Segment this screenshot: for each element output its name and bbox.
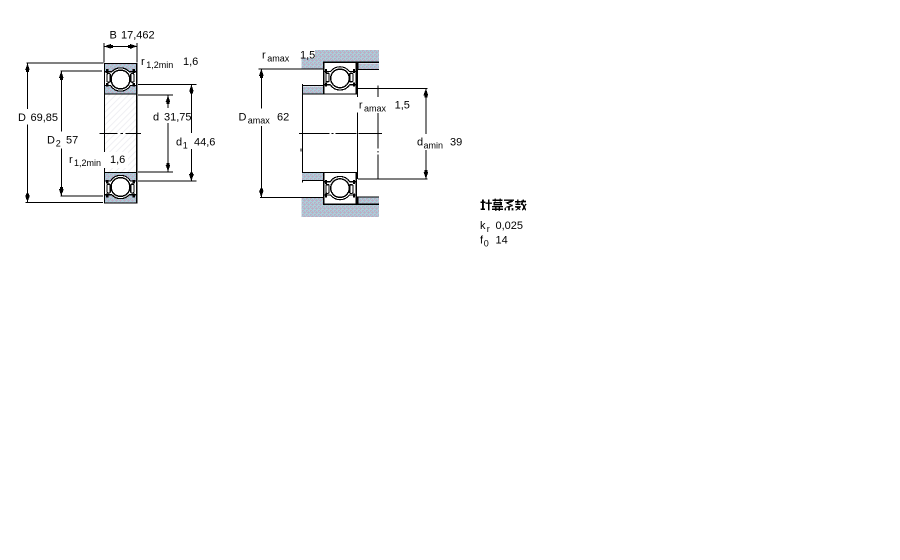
svg-text:amax: amax (364, 104, 387, 114)
svg-text:D: D (239, 112, 247, 124)
svg-text:0: 0 (484, 239, 489, 249)
svg-text:69,85: 69,85 (31, 112, 59, 124)
svg-text:B: B (110, 29, 117, 41)
svg-text:57: 57 (66, 135, 78, 147)
svg-text:39: 39 (450, 136, 462, 148)
svg-text:r: r (141, 56, 145, 68)
svg-text:d: d (153, 112, 159, 124)
svg-text:31,75: 31,75 (164, 112, 192, 124)
svg-text:1,5: 1,5 (300, 50, 315, 62)
svg-text:r: r (359, 100, 363, 112)
svg-text:amin: amin (424, 140, 444, 150)
svg-text:amax: amax (248, 116, 271, 126)
svg-text:amax: amax (267, 54, 290, 64)
svg-text:2: 2 (56, 139, 61, 149)
svg-text:0,025: 0,025 (496, 220, 524, 232)
svg-text:1,5: 1,5 (395, 100, 410, 112)
svg-text:14: 14 (496, 235, 508, 247)
svg-text:1,2min: 1,2min (74, 158, 101, 168)
svg-text:D: D (18, 112, 26, 124)
svg-text:1,2min: 1,2min (146, 60, 173, 70)
svg-text:D: D (47, 135, 55, 147)
svg-text:r: r (69, 154, 73, 166)
svg-text:17,462: 17,462 (121, 29, 155, 41)
svg-text:k: k (480, 220, 486, 232)
svg-text:44,6: 44,6 (194, 137, 215, 149)
svg-text:d: d (176, 137, 182, 149)
svg-text:r: r (262, 50, 266, 62)
svg-text:1: 1 (183, 141, 188, 151)
svg-text:d: d (417, 136, 423, 148)
svg-text:r: r (487, 224, 490, 234)
svg-text:1,6: 1,6 (110, 154, 125, 166)
svg-text:62: 62 (277, 112, 289, 124)
svg-text:1,6: 1,6 (183, 56, 198, 68)
